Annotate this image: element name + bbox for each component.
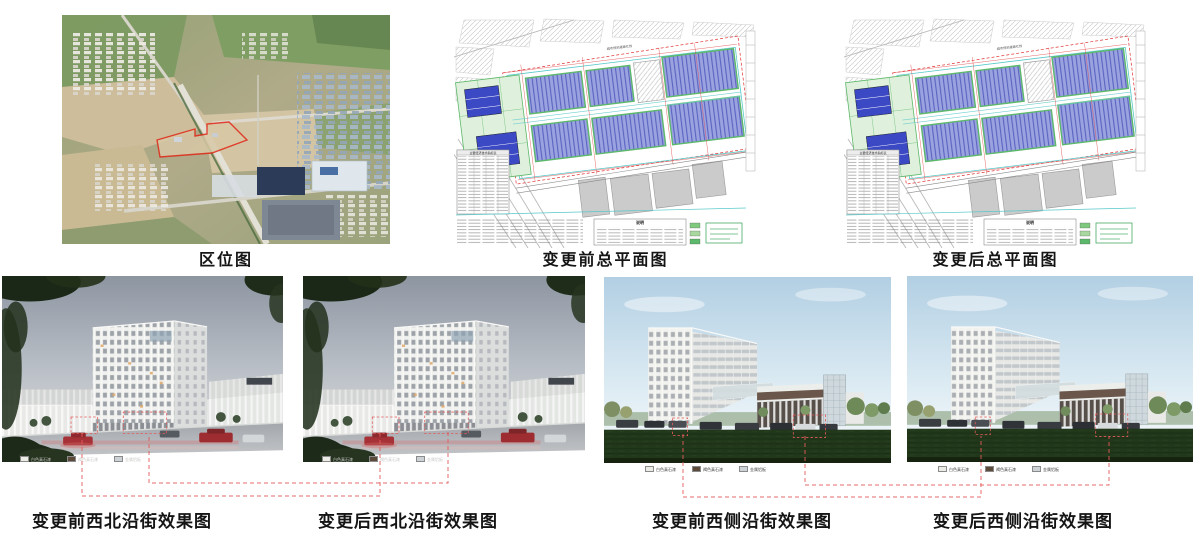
legend-label: 白色真石漆	[333, 457, 353, 462]
legend-swatch	[692, 466, 701, 472]
legend-swatch	[369, 456, 378, 462]
legend-label: 褐色真石漆	[78, 457, 98, 462]
legend-label: 白色真石漆	[656, 467, 676, 472]
legend-swatch	[416, 456, 425, 462]
material-legend: 白色真石漆 褐色真石漆 金属铝板	[20, 456, 141, 462]
legend-swatch	[67, 456, 76, 462]
site-plan-after-image	[844, 17, 1147, 248]
legend-label: 褐色真石漆	[996, 467, 1016, 472]
exhibit-board: 城市规划道路红线 主要经济技术指标表 说明	[0, 0, 1200, 542]
legend-swatch	[1032, 466, 1041, 472]
render-west-before-image	[604, 277, 891, 463]
render-nw-before-caption: 变更前西北沿街效果图	[32, 507, 212, 532]
location-map-image	[62, 15, 390, 244]
legend-label: 白色真石漆	[949, 467, 969, 472]
material-legend: 白色真石漆 褐色真石漆 金属铝板	[645, 466, 766, 472]
site-plan-after-caption: 变更后总平面图	[844, 246, 1147, 270]
legend-swatch	[114, 456, 123, 462]
legend-swatch	[985, 466, 994, 472]
render-west-before-caption: 变更前西侧沿街效果图	[652, 507, 832, 532]
material-legend: 白色真石漆 褐色真石漆 金属铝板	[322, 456, 443, 462]
legend-swatch	[739, 466, 748, 472]
site-plan-before-caption: 变更前总平面图	[454, 246, 757, 270]
material-legend: 白色真石漆 褐色真石漆 金属铝板	[938, 466, 1059, 472]
legend-swatch	[938, 466, 947, 472]
render-nw-after-caption: 变更后西北沿街效果图	[318, 507, 498, 532]
legend-swatch	[20, 456, 29, 462]
render-west-after-image	[907, 276, 1193, 462]
legend-label: 褐色真石漆	[380, 457, 400, 462]
legend-swatch	[645, 466, 654, 472]
render-nw-after-image	[303, 276, 585, 462]
legend-swatch	[322, 456, 331, 462]
render-nw-before-image	[2, 276, 283, 462]
legend-label: 褐色真石漆	[703, 467, 723, 472]
legend-label: 金属铝板	[125, 457, 141, 462]
legend-label: 白色真石漆	[31, 457, 51, 462]
render-west-after-caption: 变更后西侧沿街效果图	[933, 507, 1113, 532]
site-plan-before-image	[454, 17, 757, 248]
legend-label: 金属铝板	[750, 467, 766, 472]
location-map-caption: 区位图	[62, 246, 390, 270]
legend-label: 金属铝板	[1043, 467, 1059, 472]
legend-label: 金属铝板	[427, 457, 443, 462]
